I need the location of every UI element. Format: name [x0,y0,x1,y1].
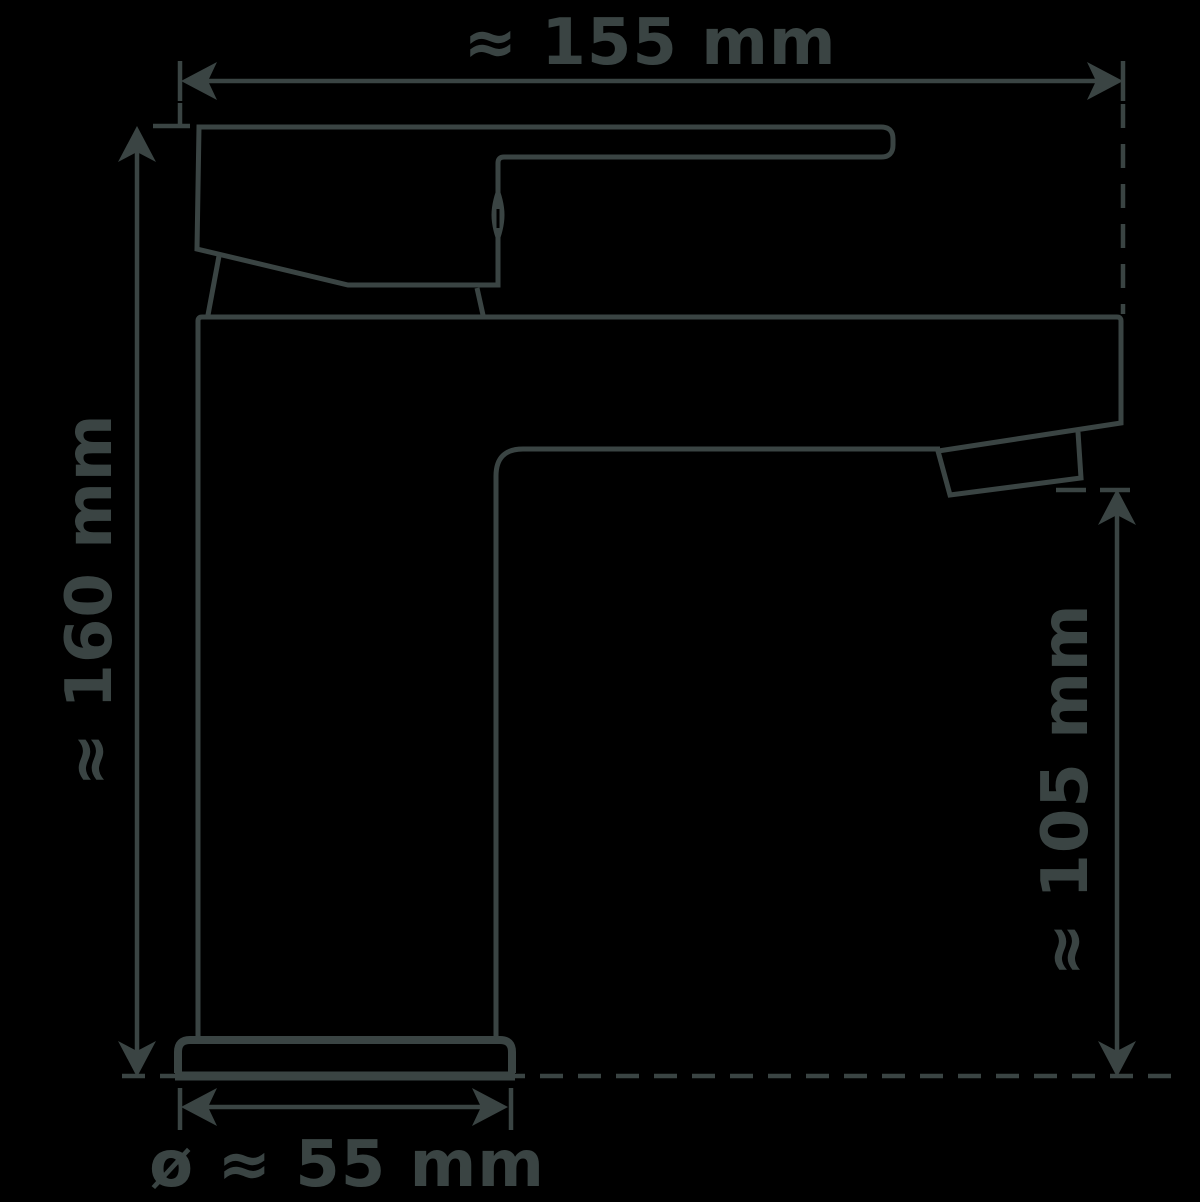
base-diameter-dimension [180,1088,511,1130]
faucet-dimension-diagram: ≈ 155 mm ≈ 160 mm ≈ 105 mm ø ≈ 55 mm [0,0,1200,1200]
escutcheon-left-edge [208,256,219,315]
spout-underside [496,449,940,1038]
escutcheon-right-edge [477,288,483,315]
height-dimension-label: ≈ 160 mm [53,413,127,786]
width-dimension-label: ≈ 155 mm [463,6,836,80]
height-dimension [118,126,190,1077]
spout-height-dimension-label: ≈ 105 mm [1029,603,1103,976]
body-outline [198,317,1121,1038]
base-flange [178,1040,512,1073]
lever-handle-outline [197,127,893,285]
faucet-line-art [0,0,1200,1200]
base-diameter-dimension-label: ø ≈ 55 mm [149,1128,545,1202]
faucet-outline [175,127,1121,1076]
width-dimension [180,61,1123,314]
